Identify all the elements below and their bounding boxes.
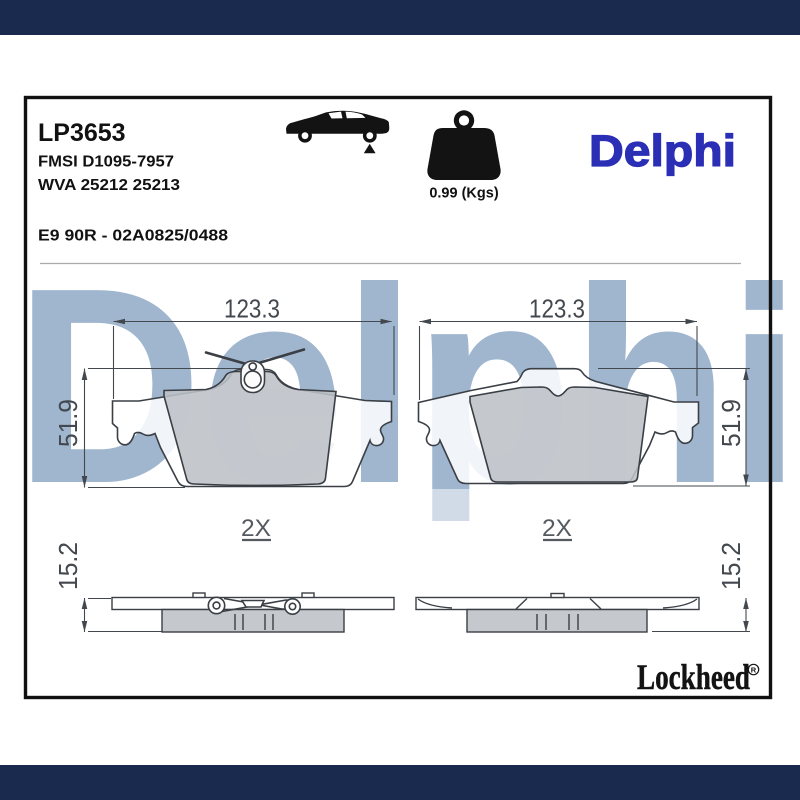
svg-text:LP3653: LP3653 bbox=[38, 119, 126, 147]
svg-text:2X: 2X bbox=[542, 515, 572, 542]
svg-text:15.2: 15.2 bbox=[53, 542, 83, 590]
svg-text:15.2: 15.2 bbox=[716, 542, 746, 590]
svg-text:51.9: 51.9 bbox=[716, 399, 746, 447]
svg-text:2X: 2X bbox=[241, 515, 271, 542]
svg-text:123.3: 123.3 bbox=[529, 294, 585, 324]
svg-text:WVA 25212 25213: WVA 25212 25213 bbox=[38, 177, 180, 194]
svg-text:51.9: 51.9 bbox=[53, 399, 83, 447]
svg-text:Delphi: Delphi bbox=[589, 127, 736, 176]
svg-text:FMSI D1095-7957: FMSI D1095-7957 bbox=[38, 154, 174, 171]
svg-text:123.3: 123.3 bbox=[224, 294, 280, 324]
svg-text:E9 90R - 02A0825/0488: E9 90R - 02A0825/0488 bbox=[38, 228, 228, 245]
svg-text:R: R bbox=[751, 666, 757, 675]
svg-text:0.99 (Kgs): 0.99 (Kgs) bbox=[429, 186, 498, 202]
svg-text:Lockheed: Lockheed bbox=[637, 657, 750, 697]
